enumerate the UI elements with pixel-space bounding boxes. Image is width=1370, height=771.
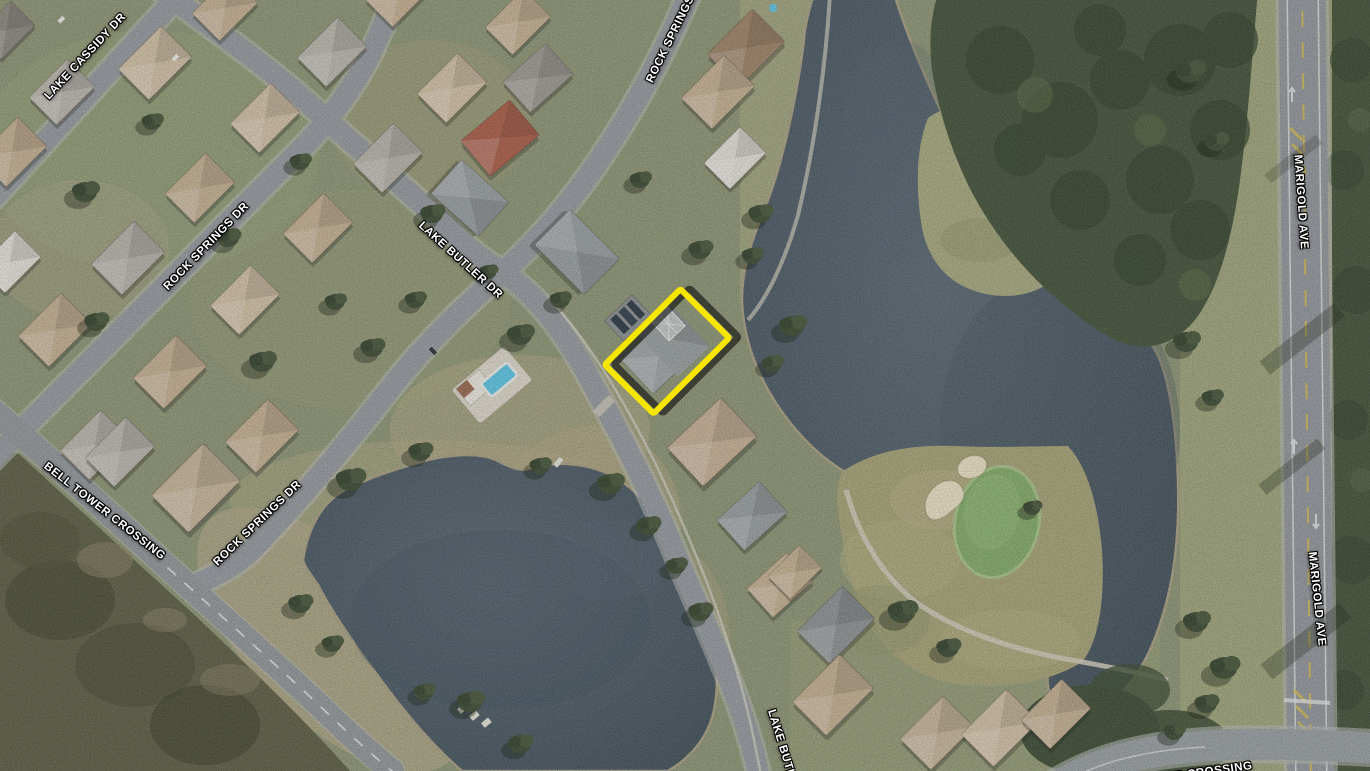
highlight-layer	[0, 0, 1370, 771]
satellite-map[interactable]: LAKE CASSIDY DR ROCK SPRINGS DR ROCK SPR…	[0, 0, 1370, 771]
